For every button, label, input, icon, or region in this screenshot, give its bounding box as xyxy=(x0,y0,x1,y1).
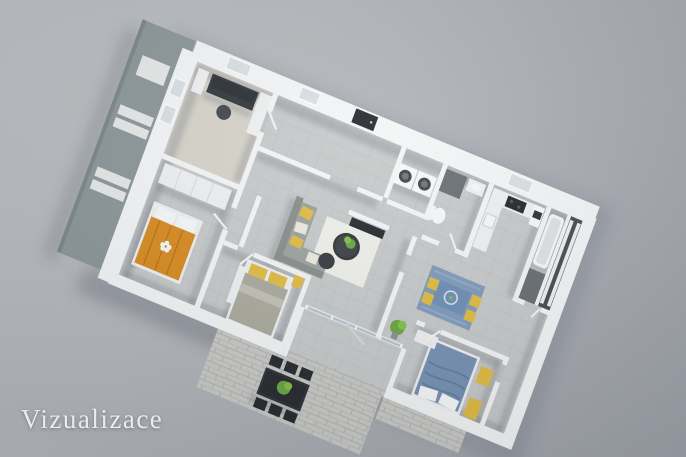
render-stage: Vizualizace xyxy=(0,0,686,457)
axonometric-world xyxy=(20,11,614,457)
watermark-text: Vizualizace xyxy=(21,404,163,435)
floorplan-3d-render xyxy=(0,0,686,457)
